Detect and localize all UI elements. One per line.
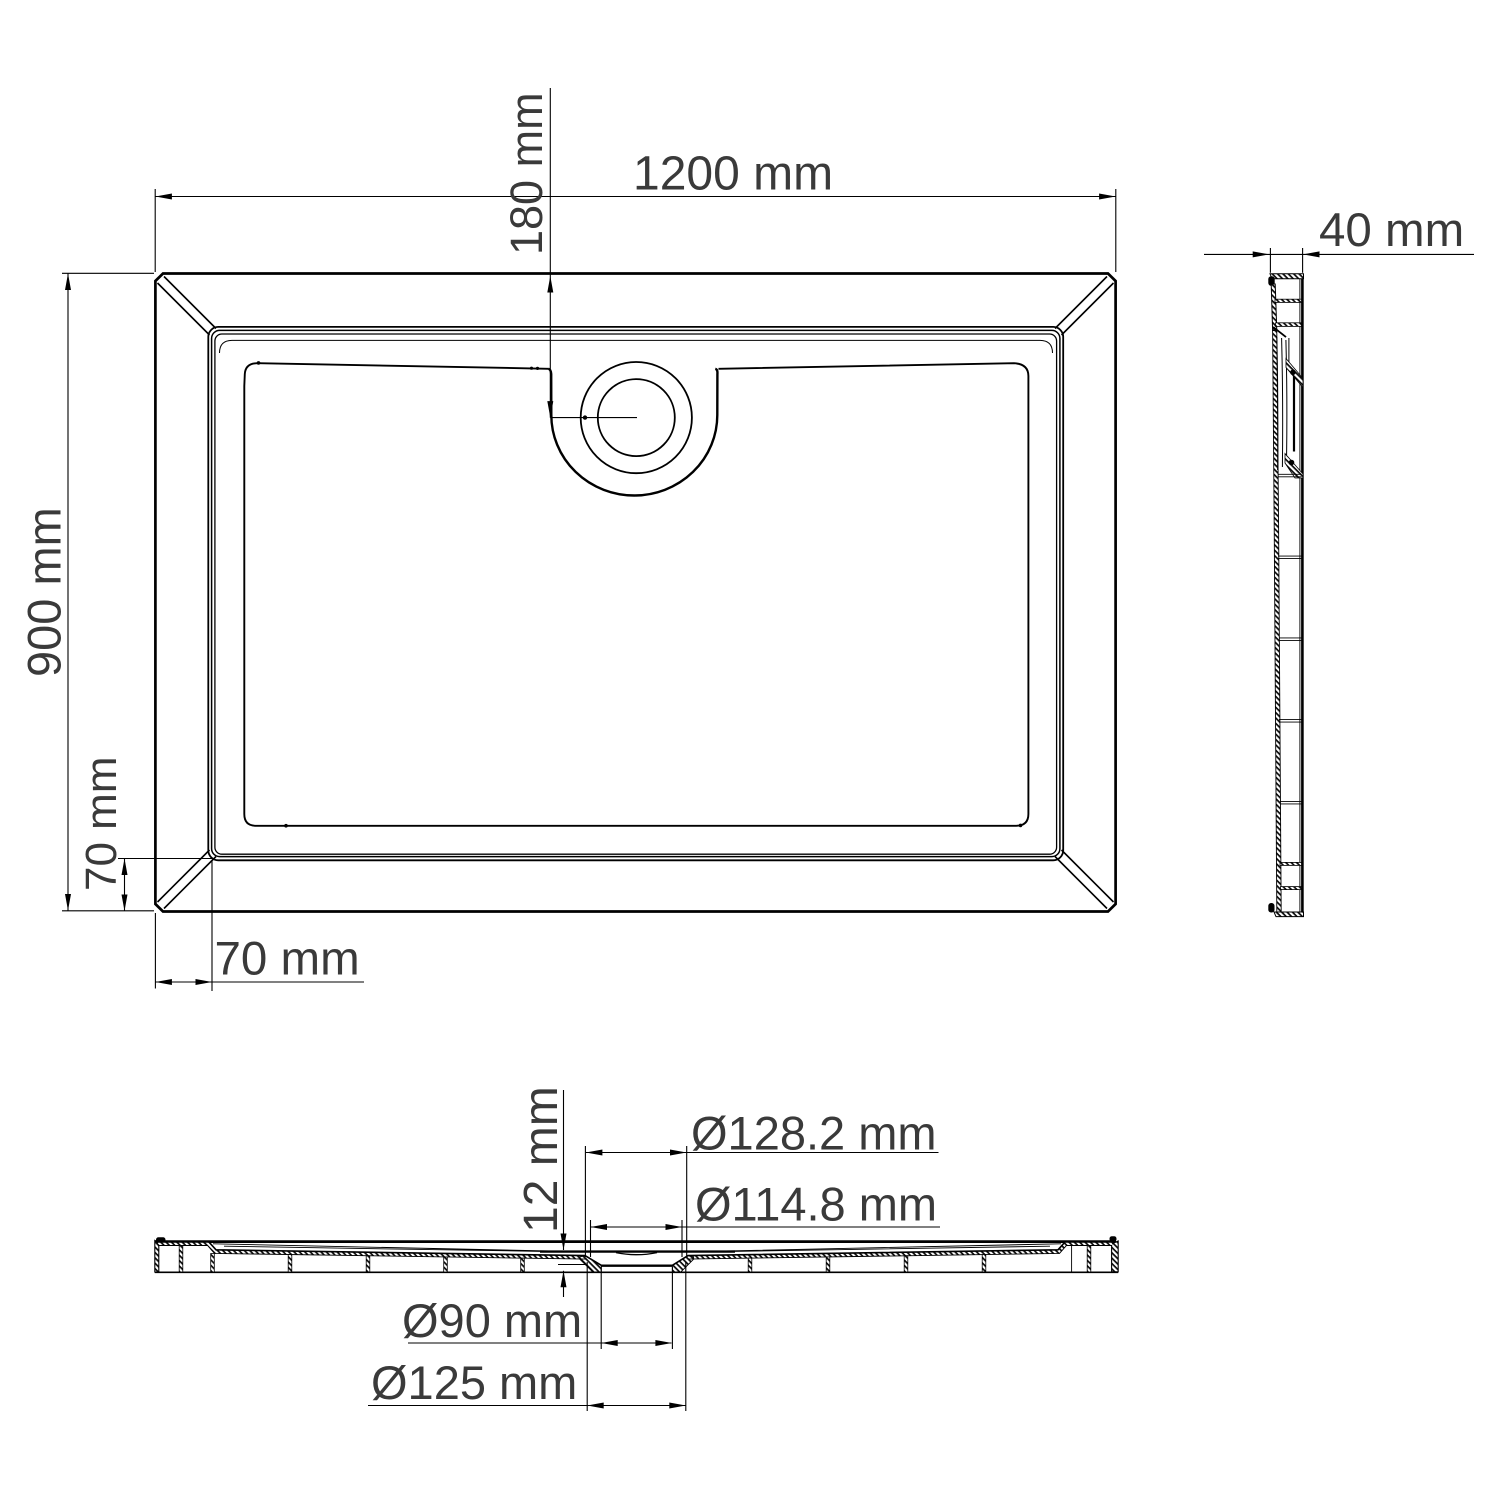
svg-text:70 mm: 70 mm <box>215 933 360 986</box>
svg-text:12 mm: 12 mm <box>515 1086 568 1233</box>
svg-text:70 mm: 70 mm <box>77 757 126 891</box>
svg-text:180 mm: 180 mm <box>501 92 552 255</box>
svg-text:900 mm: 900 mm <box>18 507 71 677</box>
svg-text:Ø90 mm: Ø90 mm <box>402 1294 582 1347</box>
svg-text:Ø125 mm: Ø125 mm <box>371 1356 577 1409</box>
svg-text:Ø128.2 mm: Ø128.2 mm <box>691 1107 937 1160</box>
svg-text:Ø114.8 mm: Ø114.8 mm <box>695 1178 937 1231</box>
svg-text:1200 mm: 1200 mm <box>633 148 833 201</box>
svg-text:40 mm: 40 mm <box>1319 204 1464 257</box>
